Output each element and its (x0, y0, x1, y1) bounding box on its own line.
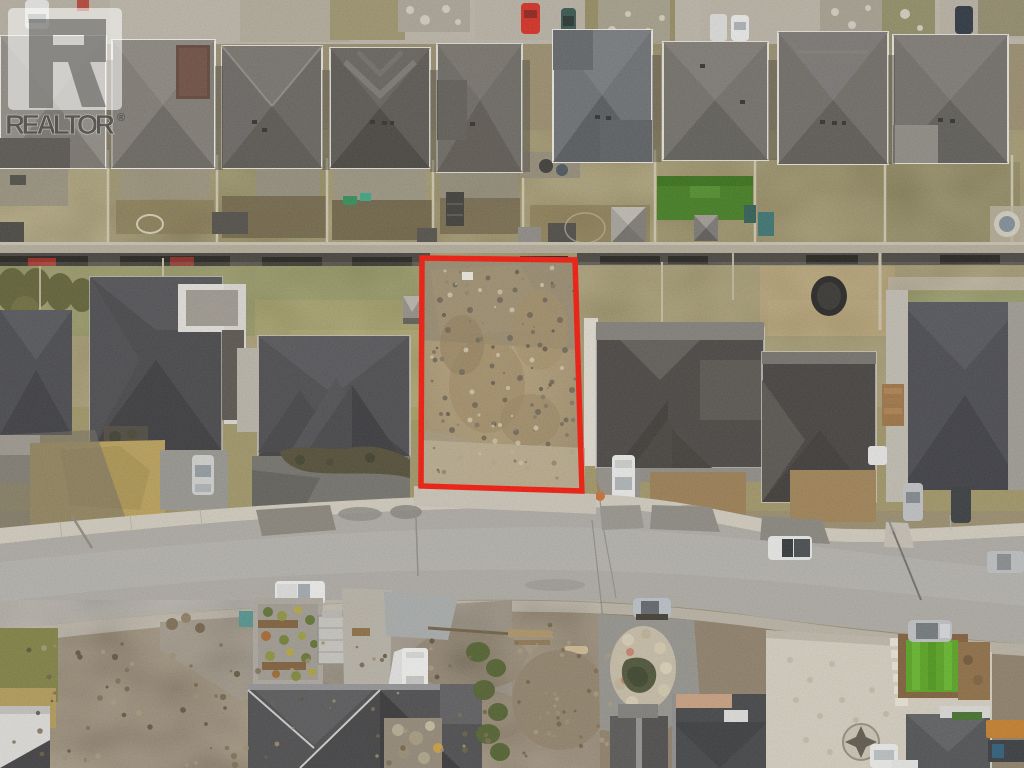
svg-text:®: ® (117, 112, 125, 124)
svg-text:REALTOR: REALTOR (5, 109, 115, 140)
